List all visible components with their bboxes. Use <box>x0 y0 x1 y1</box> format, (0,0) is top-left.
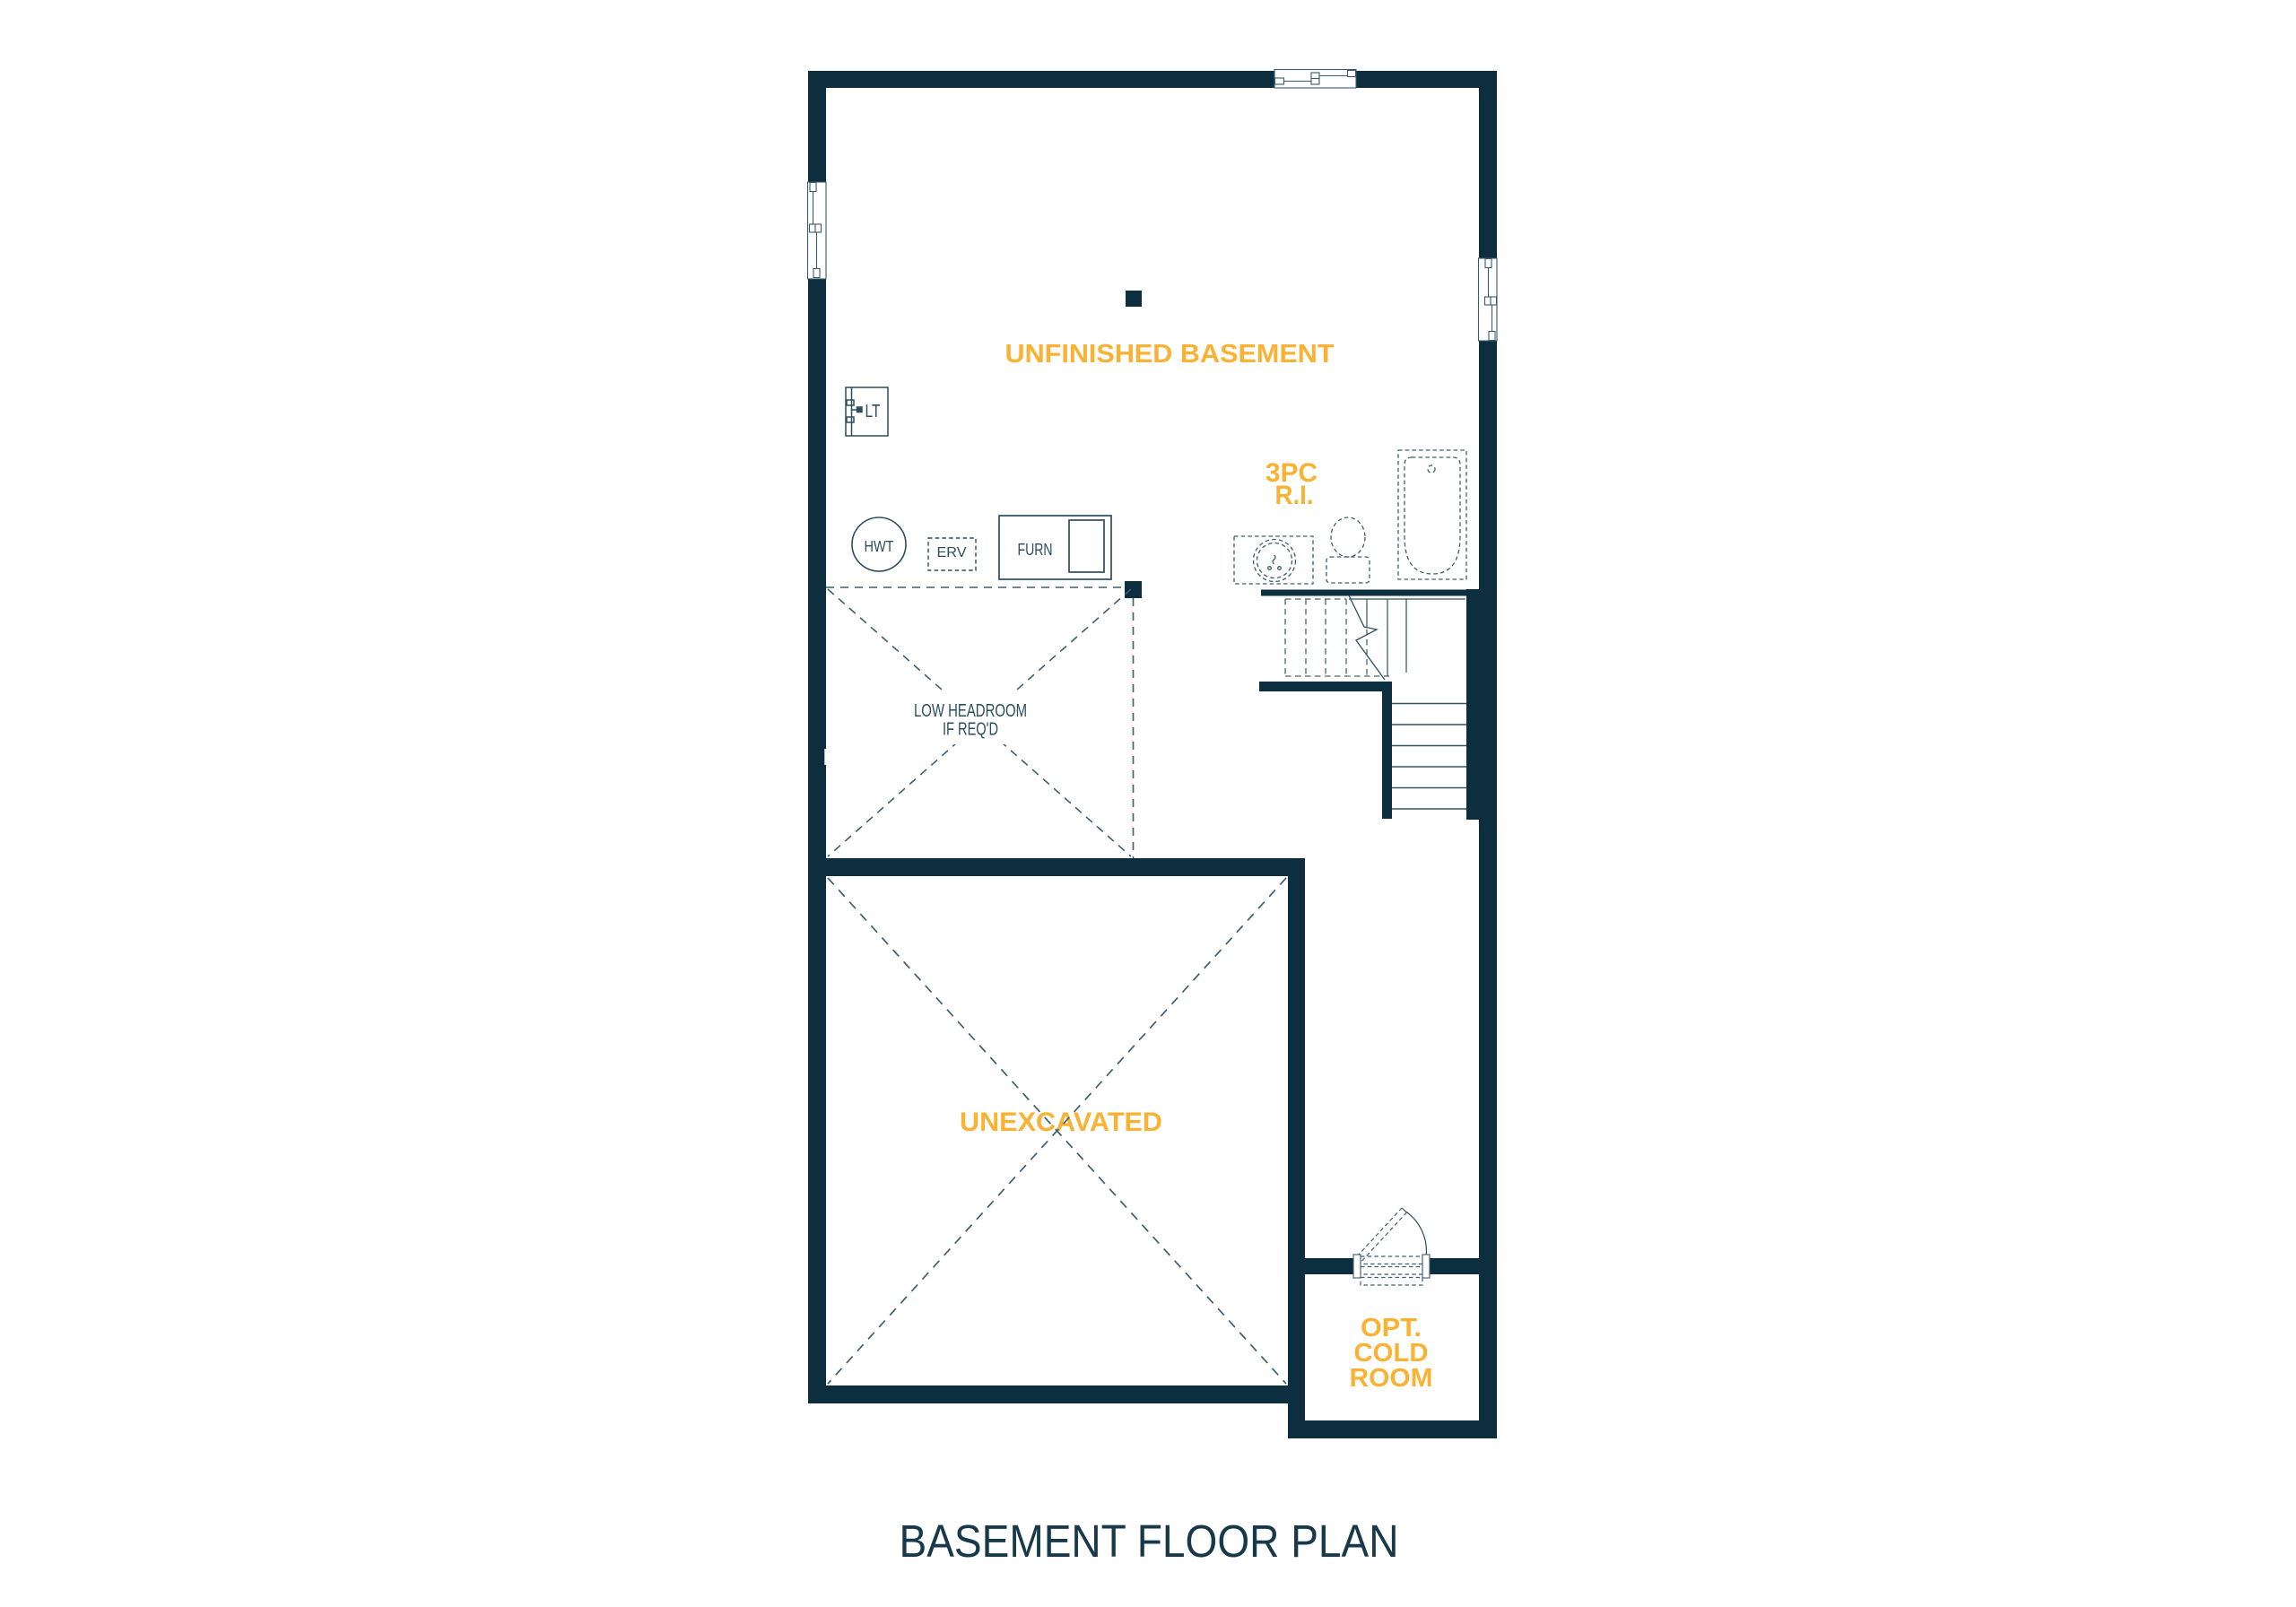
svg-text:UNFINISHED BASEMENT: UNFINISHED BASEMENT <box>1005 340 1335 369</box>
svg-text:IF REQ'D: IF REQ'D <box>943 720 998 740</box>
svg-text:UNEXCAVATED: UNEXCAVATED <box>960 1108 1162 1137</box>
svg-text:FURN: FURN <box>1018 540 1053 559</box>
svg-text:BASEMENT FLOOR PLAN: BASEMENT FLOOR PLAN <box>900 1516 1399 1567</box>
svg-text:LOW HEADROOM: LOW HEADROOM <box>914 701 1027 721</box>
svg-text:R.I.: R.I. <box>1275 481 1314 510</box>
svg-text:LT: LT <box>865 402 881 421</box>
svg-text:ERV: ERV <box>937 545 968 560</box>
svg-text:HWT: HWT <box>865 537 894 555</box>
svg-text:ROOM: ROOM <box>1350 1364 1433 1393</box>
